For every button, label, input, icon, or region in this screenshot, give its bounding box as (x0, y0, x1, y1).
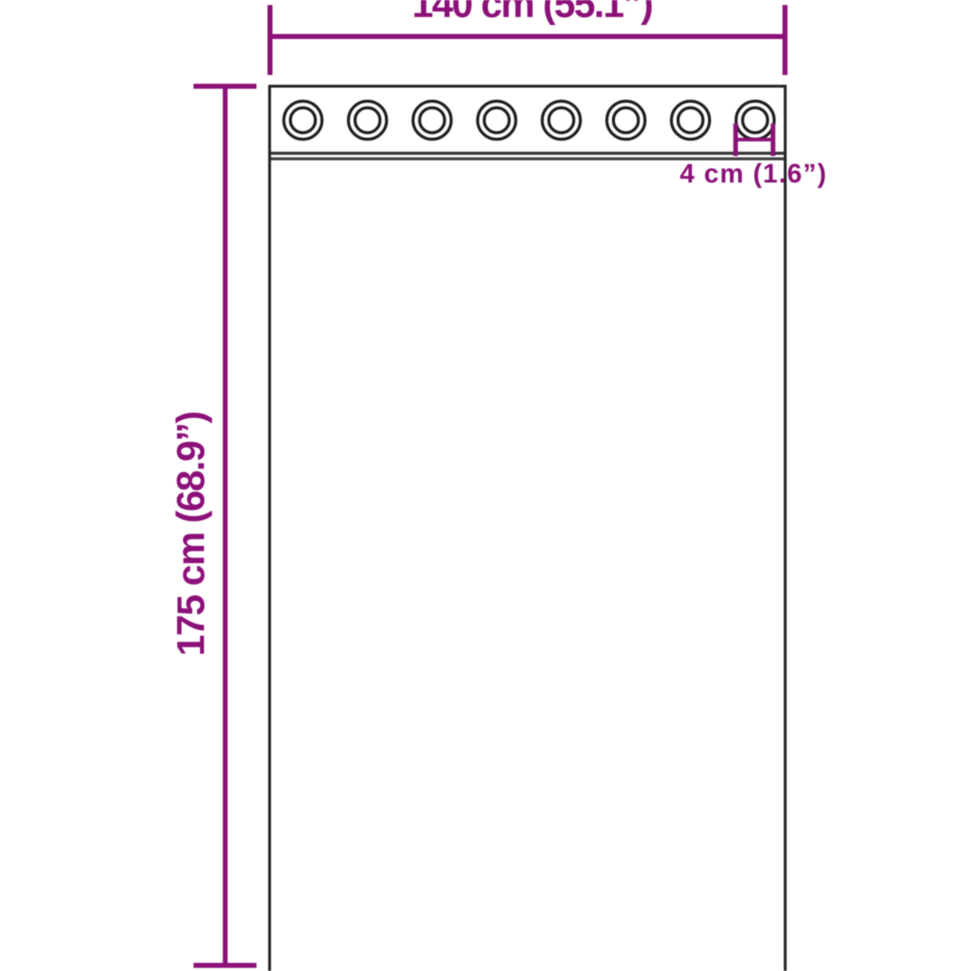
svg-text:4 cm (1.6”): 4 cm (1.6”) (680, 159, 828, 189)
svg-text:175 cm (68.9”): 175 cm (68.9”) (170, 412, 213, 656)
svg-text:140 cm (55.1”): 140 cm (55.1”) (412, 0, 652, 26)
